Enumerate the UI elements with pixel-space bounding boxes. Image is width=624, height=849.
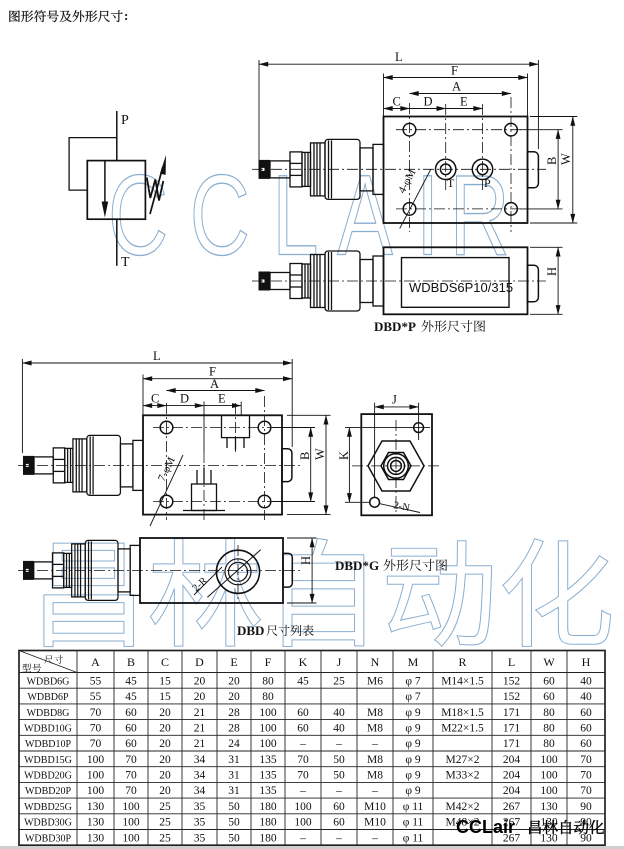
- svg-text:φ 7: φ 7: [405, 675, 421, 687]
- svg-text:60: 60: [543, 691, 555, 703]
- svg-text:204: 204: [503, 785, 521, 797]
- svg-text:135: 135: [259, 754, 277, 766]
- svg-text:35: 35: [194, 832, 206, 844]
- svg-text:60: 60: [333, 817, 345, 829]
- svg-text:L: L: [508, 655, 515, 669]
- svg-text:20: 20: [194, 691, 206, 703]
- svg-text:φ 9: φ 9: [405, 723, 421, 735]
- svg-text:2-N: 2-N: [392, 500, 411, 514]
- svg-text:25: 25: [333, 675, 345, 687]
- svg-text:4-φM: 4-φM: [396, 167, 419, 195]
- svg-text:H: H: [582, 655, 591, 669]
- svg-text:M27×2: M27×2: [446, 754, 480, 766]
- svg-text:100: 100: [87, 785, 105, 797]
- svg-text:80: 80: [543, 707, 555, 719]
- svg-text:WDBD15G: WDBD15G: [24, 755, 72, 766]
- svg-text:D: D: [424, 95, 433, 109]
- svg-text:WDBD25G: WDBD25G: [24, 802, 72, 813]
- svg-text:B: B: [127, 655, 135, 669]
- svg-text:50: 50: [228, 832, 240, 844]
- svg-text:130: 130: [540, 832, 558, 844]
- svg-text:100: 100: [259, 738, 277, 750]
- svg-text:28: 28: [228, 707, 240, 719]
- svg-text:15: 15: [159, 675, 171, 687]
- svg-text:60: 60: [125, 738, 137, 750]
- svg-text:100: 100: [540, 770, 558, 782]
- svg-text:A: A: [452, 80, 461, 94]
- svg-text:B: B: [298, 452, 312, 460]
- svg-text:21: 21: [194, 723, 206, 735]
- svg-text:15: 15: [159, 691, 171, 703]
- svg-text:35: 35: [194, 817, 206, 829]
- svg-text:φ 9: φ 9: [405, 785, 421, 797]
- svg-text:50: 50: [228, 817, 240, 829]
- svg-text:J: J: [337, 655, 342, 669]
- svg-text:DBD*G: DBD*G: [335, 558, 379, 573]
- svg-text:B: B: [545, 157, 559, 165]
- svg-text:–: –: [299, 785, 306, 797]
- svg-text:WDBD10P: WDBD10P: [25, 739, 72, 750]
- svg-text:WDBD30P: WDBD30P: [25, 833, 72, 844]
- svg-text:100: 100: [540, 785, 558, 797]
- svg-text:M18×1.5: M18×1.5: [441, 707, 484, 719]
- svg-text:100: 100: [122, 817, 140, 829]
- svg-text:50: 50: [333, 770, 345, 782]
- svg-text:100: 100: [540, 754, 558, 766]
- svg-text:180: 180: [259, 801, 277, 813]
- svg-text:φ 11: φ 11: [403, 817, 424, 829]
- svg-text:267: 267: [503, 801, 521, 813]
- svg-text:M42×2: M42×2: [446, 801, 480, 813]
- svg-text:20: 20: [159, 785, 171, 797]
- svg-text:T: T: [121, 255, 130, 270]
- svg-text:70: 70: [90, 723, 102, 735]
- svg-text:60: 60: [297, 707, 309, 719]
- svg-text:20: 20: [194, 675, 206, 687]
- svg-text:P: P: [484, 176, 491, 190]
- svg-text:DBD: DBD: [237, 623, 264, 638]
- svg-text:135: 135: [259, 785, 277, 797]
- svg-text:55: 55: [90, 675, 102, 687]
- svg-text:M8: M8: [367, 723, 383, 735]
- svg-text:80: 80: [262, 675, 274, 687]
- svg-text:DBD*P: DBD*P: [374, 319, 416, 334]
- svg-text:φ 9: φ 9: [405, 754, 421, 766]
- svg-text:180: 180: [259, 817, 277, 829]
- svg-text:25: 25: [159, 832, 171, 844]
- svg-text:152: 152: [503, 691, 521, 703]
- svg-text:20: 20: [159, 770, 171, 782]
- svg-text:45: 45: [125, 691, 137, 703]
- svg-text:H: H: [299, 556, 313, 565]
- svg-text:100: 100: [87, 770, 105, 782]
- svg-text:M: M: [408, 655, 419, 669]
- svg-text:70: 70: [125, 754, 137, 766]
- svg-text:100: 100: [122, 801, 140, 813]
- svg-text:E: E: [460, 95, 468, 109]
- svg-text:60: 60: [125, 707, 137, 719]
- svg-text:60: 60: [543, 675, 555, 687]
- svg-text:M8: M8: [367, 770, 383, 782]
- svg-text:φ 11: φ 11: [403, 801, 424, 813]
- svg-text:28: 28: [228, 723, 240, 735]
- svg-text:21: 21: [194, 707, 206, 719]
- svg-text:34: 34: [194, 754, 206, 766]
- svg-text:70: 70: [580, 770, 592, 782]
- svg-text:50: 50: [228, 801, 240, 813]
- svg-text:100: 100: [122, 832, 140, 844]
- svg-text:WDBD30G: WDBD30G: [24, 818, 72, 829]
- svg-text:90: 90: [580, 832, 592, 844]
- svg-text:WDBD6P: WDBD6P: [27, 692, 69, 703]
- svg-text:WDBD8G: WDBD8G: [27, 708, 70, 719]
- svg-text:R: R: [458, 655, 466, 669]
- svg-text:F: F: [451, 64, 458, 78]
- svg-text:20: 20: [228, 675, 240, 687]
- svg-text:P: P: [121, 113, 129, 128]
- svg-text:C: C: [161, 655, 169, 669]
- svg-text:M8: M8: [367, 754, 383, 766]
- svg-text:130: 130: [87, 801, 105, 813]
- svg-text:K: K: [299, 655, 308, 669]
- svg-text:21: 21: [194, 738, 206, 750]
- svg-text:–: –: [335, 738, 342, 750]
- svg-text:152: 152: [503, 675, 521, 687]
- svg-text:40: 40: [580, 691, 592, 703]
- svg-text:D: D: [195, 655, 204, 669]
- svg-text:M6: M6: [367, 675, 383, 687]
- svg-text:WDBD10G: WDBD10G: [24, 724, 72, 735]
- svg-text:60: 60: [580, 738, 592, 750]
- svg-text:90: 90: [580, 801, 592, 813]
- svg-text:–: –: [371, 832, 378, 844]
- svg-text:E: E: [230, 655, 237, 669]
- svg-text:60: 60: [297, 723, 309, 735]
- svg-text:–: –: [371, 738, 378, 750]
- svg-text:25: 25: [159, 817, 171, 829]
- svg-text:130: 130: [87, 832, 105, 844]
- svg-text:40: 40: [333, 707, 345, 719]
- svg-text:M10: M10: [364, 817, 386, 829]
- svg-text:70: 70: [297, 770, 309, 782]
- svg-text:100: 100: [259, 723, 277, 735]
- svg-text:40: 40: [580, 675, 592, 687]
- svg-text:70: 70: [125, 785, 137, 797]
- svg-text:20: 20: [159, 707, 171, 719]
- svg-text:135: 135: [259, 770, 277, 782]
- svg-text:60: 60: [580, 723, 592, 735]
- svg-text:100: 100: [294, 817, 312, 829]
- svg-text:–: –: [335, 785, 342, 797]
- svg-text:130: 130: [87, 817, 105, 829]
- svg-text:W: W: [313, 448, 327, 460]
- svg-text:60: 60: [580, 707, 592, 719]
- svg-text:60: 60: [333, 801, 345, 813]
- svg-text:M14×1.5: M14×1.5: [441, 675, 484, 687]
- svg-text:180: 180: [259, 832, 277, 844]
- svg-text:WDBD20G: WDBD20G: [24, 771, 72, 782]
- svg-text:–: –: [299, 832, 306, 844]
- svg-text:C: C: [393, 95, 401, 109]
- svg-text:130: 130: [540, 801, 558, 813]
- svg-text:171: 171: [503, 738, 521, 750]
- svg-text:W: W: [543, 655, 555, 669]
- svg-text:WDBD6G: WDBD6G: [27, 676, 70, 687]
- svg-text:171: 171: [503, 707, 521, 719]
- svg-text:L: L: [153, 349, 161, 363]
- svg-text:34: 34: [194, 770, 206, 782]
- svg-text:20: 20: [159, 754, 171, 766]
- svg-text:171: 171: [503, 723, 521, 735]
- svg-text:WDBDS6P10/315: WDBDS6P10/315: [409, 280, 513, 295]
- svg-text:40: 40: [333, 723, 345, 735]
- svg-text:50: 50: [333, 754, 345, 766]
- svg-text:100: 100: [259, 707, 277, 719]
- svg-text:M33×2: M33×2: [446, 770, 480, 782]
- svg-text:80: 80: [543, 738, 555, 750]
- svg-text:45: 45: [297, 675, 309, 687]
- svg-text:F: F: [265, 655, 272, 669]
- svg-text:31: 31: [228, 770, 240, 782]
- svg-text:φ 9: φ 9: [405, 770, 421, 782]
- svg-text:J: J: [392, 393, 397, 407]
- svg-text:70: 70: [90, 738, 102, 750]
- svg-text:–: –: [299, 738, 306, 750]
- svg-text:D: D: [180, 392, 189, 406]
- svg-text:φ 9: φ 9: [405, 707, 421, 719]
- svg-text:70: 70: [125, 770, 137, 782]
- svg-text:L: L: [395, 50, 403, 64]
- svg-text:K: K: [337, 451, 351, 460]
- svg-text:70: 70: [580, 785, 592, 797]
- svg-text:20: 20: [159, 723, 171, 735]
- svg-text:W: W: [559, 153, 573, 165]
- svg-text:60: 60: [125, 723, 137, 735]
- svg-text:35: 35: [194, 801, 206, 813]
- svg-text:204: 204: [503, 754, 521, 766]
- svg-text:CCLair: CCLair: [456, 817, 515, 837]
- svg-text:100: 100: [87, 754, 105, 766]
- svg-text:φ 11: φ 11: [403, 832, 424, 844]
- svg-text:25: 25: [159, 801, 171, 813]
- svg-text:C: C: [151, 392, 159, 406]
- svg-text:20: 20: [159, 738, 171, 750]
- svg-text:70: 70: [580, 754, 592, 766]
- svg-text:31: 31: [228, 785, 240, 797]
- svg-text:34: 34: [194, 785, 206, 797]
- svg-text::: :: [124, 8, 128, 23]
- svg-text:31: 31: [228, 754, 240, 766]
- svg-text:T: T: [447, 176, 455, 190]
- svg-text:45: 45: [125, 675, 137, 687]
- svg-text:2-R: 2-R: [191, 576, 210, 595]
- svg-text:24: 24: [228, 738, 240, 750]
- svg-text:M8: M8: [367, 707, 383, 719]
- svg-text:70: 70: [90, 707, 102, 719]
- svg-text:70: 70: [297, 754, 309, 766]
- svg-text:E: E: [218, 392, 226, 406]
- svg-text:55: 55: [90, 691, 102, 703]
- svg-text:N: N: [371, 655, 380, 669]
- svg-text:100: 100: [294, 801, 312, 813]
- svg-text:φ 7: φ 7: [405, 691, 421, 703]
- svg-text:M22×1.5: M22×1.5: [441, 723, 484, 735]
- svg-text:H: H: [545, 267, 559, 276]
- svg-text:φ 9: φ 9: [405, 738, 421, 750]
- svg-text:80: 80: [543, 723, 555, 735]
- svg-text:A: A: [210, 377, 219, 391]
- svg-text:7-φM: 7-φM: [156, 455, 178, 483]
- svg-text:–: –: [335, 832, 342, 844]
- svg-text:80: 80: [262, 691, 274, 703]
- svg-text:–: –: [371, 785, 378, 797]
- svg-text:WDBD20P: WDBD20P: [25, 786, 72, 797]
- svg-text:20: 20: [228, 691, 240, 703]
- svg-text:204: 204: [503, 770, 521, 782]
- svg-text:M10: M10: [364, 801, 386, 813]
- svg-text:A: A: [91, 655, 100, 669]
